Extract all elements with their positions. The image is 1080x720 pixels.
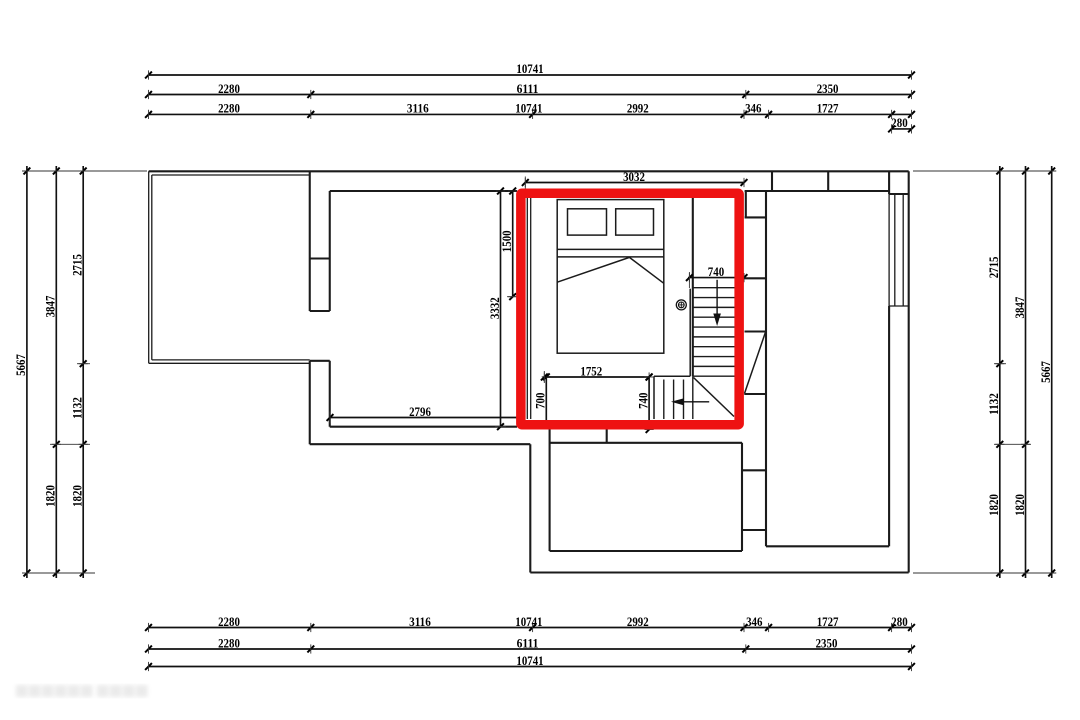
svg-text:2350: 2350 bbox=[817, 81, 839, 96]
svg-text:346: 346 bbox=[746, 614, 763, 629]
svg-text:5667: 5667 bbox=[13, 354, 28, 376]
svg-text:2280: 2280 bbox=[218, 101, 240, 116]
svg-text:280: 280 bbox=[891, 115, 907, 130]
svg-text:1132: 1132 bbox=[986, 393, 1001, 415]
svg-text:6111: 6111 bbox=[517, 635, 539, 650]
svg-text:2280: 2280 bbox=[218, 635, 240, 650]
svg-text:2280: 2280 bbox=[218, 614, 240, 629]
svg-text:3332: 3332 bbox=[487, 297, 502, 319]
svg-text:3116: 3116 bbox=[409, 614, 431, 629]
svg-text:2715: 2715 bbox=[70, 254, 85, 276]
svg-text:1132: 1132 bbox=[70, 397, 85, 419]
svg-text:6111: 6111 bbox=[517, 81, 539, 96]
svg-text:2715: 2715 bbox=[986, 256, 1001, 278]
svg-text:740: 740 bbox=[635, 393, 650, 409]
svg-text:10741: 10741 bbox=[515, 614, 542, 629]
svg-text:2796: 2796 bbox=[409, 404, 431, 419]
svg-text:1820: 1820 bbox=[1012, 494, 1027, 516]
svg-text:1727: 1727 bbox=[817, 101, 839, 116]
svg-text:1820: 1820 bbox=[986, 494, 1001, 516]
svg-text:3847: 3847 bbox=[1012, 296, 1027, 318]
svg-text:3116: 3116 bbox=[407, 101, 429, 116]
svg-text:2992: 2992 bbox=[627, 614, 649, 629]
svg-text:280: 280 bbox=[891, 614, 907, 629]
svg-text:2350: 2350 bbox=[816, 635, 838, 650]
svg-text:10741: 10741 bbox=[515, 101, 542, 116]
svg-text:1727: 1727 bbox=[817, 614, 839, 629]
svg-text:2992: 2992 bbox=[627, 101, 649, 116]
svg-text:346: 346 bbox=[745, 101, 762, 116]
svg-text:700: 700 bbox=[533, 393, 548, 409]
svg-text:2280: 2280 bbox=[218, 81, 240, 96]
svg-text:10741: 10741 bbox=[516, 653, 543, 668]
svg-text:3847: 3847 bbox=[43, 295, 58, 317]
svg-text:5667: 5667 bbox=[1038, 361, 1053, 383]
svg-text:3032: 3032 bbox=[623, 169, 645, 184]
svg-text:1752: 1752 bbox=[580, 363, 602, 378]
svg-text:1820: 1820 bbox=[43, 485, 58, 507]
svg-text:740: 740 bbox=[708, 264, 724, 279]
svg-text:10741: 10741 bbox=[516, 61, 543, 76]
svg-text:1820: 1820 bbox=[70, 485, 85, 507]
